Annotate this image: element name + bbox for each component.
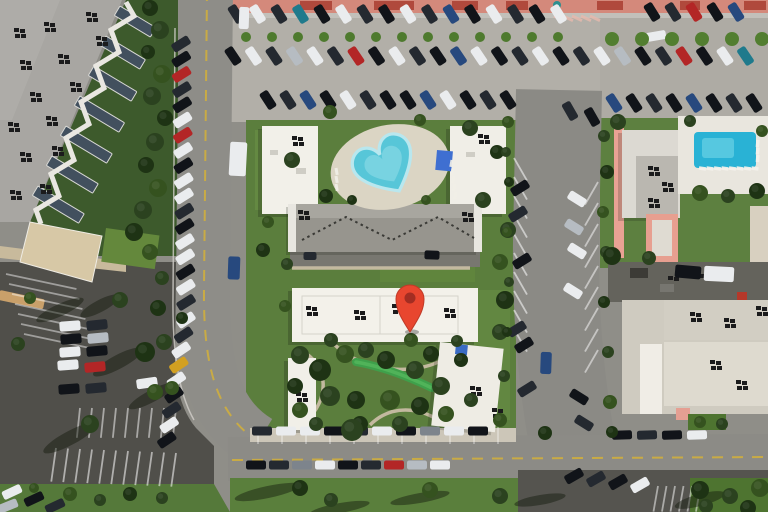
roof-unit [743, 386, 748, 390]
roof-unit [15, 128, 20, 132]
roof-unit [92, 13, 97, 17]
roof-unit [77, 88, 82, 92]
tree-highlight [423, 196, 428, 201]
car [85, 382, 107, 394]
car [58, 383, 80, 394]
car [60, 333, 82, 344]
tree-highlight [612, 116, 619, 123]
tree-highlight [289, 380, 296, 387]
roof-unit [711, 366, 716, 370]
car [674, 264, 701, 279]
roof-unit [27, 158, 32, 162]
tree-highlight [281, 302, 286, 307]
tree-highlight [65, 489, 71, 495]
roof-unit [26, 153, 31, 157]
roof-unit [736, 380, 741, 384]
parking-stripe [707, 168, 714, 169]
roof-unit [691, 318, 696, 322]
roof-unit [477, 392, 482, 396]
car [637, 430, 657, 440]
tree-highlight [125, 489, 131, 495]
tree-highlight [456, 355, 462, 361]
roof-unit [485, 140, 490, 144]
roof-unit [649, 204, 654, 208]
roof-unit [41, 190, 46, 194]
tree-highlight [466, 395, 472, 401]
tree-highlight [349, 196, 354, 201]
roof-unit [393, 310, 398, 314]
roof-unit [716, 361, 721, 365]
tree-highlight [158, 336, 165, 343]
roof-unit [36, 93, 41, 97]
tree-highlight [494, 490, 501, 497]
tree-highlight [754, 481, 762, 489]
roof-unit [655, 204, 660, 208]
tree-highlight [701, 501, 707, 507]
roof-unit [10, 190, 15, 194]
tree-highlight [140, 159, 147, 166]
roof-unit [64, 55, 69, 59]
roof-unit [479, 140, 484, 144]
tree-highlight [146, 89, 154, 97]
tree-highlight [96, 496, 101, 501]
roof-unit [662, 182, 667, 186]
parking-stripe [757, 140, 758, 147]
roof-unit [51, 28, 56, 32]
parking-stripe [757, 155, 758, 162]
roof-unit [31, 98, 36, 102]
tree-highlight [494, 256, 501, 263]
parking-stripe [454, 184, 455, 191]
car [304, 252, 317, 260]
tree [241, 32, 251, 42]
tree-highlight [156, 67, 164, 75]
pin-hole [405, 293, 416, 304]
car [229, 142, 248, 177]
pool-highlight [702, 138, 734, 158]
roof-unit [303, 398, 308, 402]
tree-highlight [724, 490, 731, 497]
tree-highlight [435, 379, 443, 387]
roof-mark [270, 150, 278, 155]
roof-unit [724, 318, 729, 322]
tree-highlight [424, 484, 431, 491]
tree-highlight [159, 112, 166, 119]
roof-unit [93, 18, 98, 22]
roof-unit [65, 60, 70, 64]
tree-highlight [137, 203, 145, 211]
car [239, 7, 250, 29]
car [338, 461, 358, 470]
tree-highlight [694, 483, 702, 491]
roof-unit [102, 37, 107, 41]
roof-unit [8, 122, 13, 126]
tree-highlight [600, 298, 605, 303]
roof-unit [71, 88, 76, 92]
roof-unit [756, 306, 761, 310]
parking-stripe [336, 184, 337, 191]
tree-highlight [742, 502, 749, 509]
car [228, 256, 241, 279]
tree [665, 32, 679, 46]
thin-building [750, 206, 768, 262]
roof-unit [663, 188, 668, 192]
tree-highlight [644, 253, 650, 259]
commercial-roof-2 [664, 342, 768, 406]
tree-highlight [494, 326, 501, 333]
car [540, 352, 552, 374]
car [662, 430, 682, 440]
aerial-map-view [0, 0, 768, 512]
parking-stripe [722, 168, 729, 169]
tree-highlight [152, 302, 159, 309]
parking-stripe [752, 168, 759, 169]
planter-box [744, 1, 766, 10]
roof-unit [649, 172, 654, 176]
roof-unit [696, 313, 701, 317]
roof-unit [59, 60, 64, 64]
tree-highlight [694, 187, 701, 194]
roof-unit [21, 158, 26, 162]
roof-unit [14, 123, 19, 127]
car [324, 427, 344, 436]
parking-stripe [453, 176, 454, 183]
tree-highlight [326, 335, 332, 341]
parking-stripe [729, 168, 736, 169]
roof-unit [730, 319, 735, 323]
tree-highlight [503, 148, 508, 153]
tree-highlight [178, 314, 183, 319]
roof-unit [697, 318, 702, 322]
planter-box [597, 1, 623, 10]
roof-unit [292, 136, 297, 140]
roof-unit [451, 314, 456, 318]
tree-highlight [599, 208, 604, 213]
roof-unit [53, 152, 58, 156]
tree [397, 32, 407, 42]
tree-highlight [312, 362, 322, 372]
tree-highlight [26, 294, 31, 299]
roof-unit [26, 61, 31, 65]
car [361, 461, 381, 470]
roof-unit [731, 324, 736, 328]
tree-highlight [380, 353, 388, 361]
red-container [737, 292, 747, 301]
roof-unit [478, 134, 483, 138]
tree-highlight [258, 245, 264, 251]
tree [423, 32, 433, 42]
roof-unit [87, 18, 92, 22]
tree-highlight [453, 337, 458, 342]
roof-unit [47, 190, 52, 194]
tree-highlight [143, 47, 149, 53]
tree-highlight [157, 273, 163, 279]
building-a [262, 126, 318, 214]
roof-unit [298, 137, 303, 141]
tree-highlight [504, 328, 509, 333]
tree-highlight [540, 428, 546, 434]
tree-highlight [167, 383, 173, 389]
tree-highlight [128, 225, 136, 233]
tree-highlight [114, 294, 121, 301]
parking-stripe [451, 160, 452, 167]
roof-unit [40, 184, 45, 188]
tree-highlight [325, 107, 331, 113]
car [468, 427, 488, 436]
white-roof-strip [640, 344, 662, 414]
tree [293, 32, 303, 42]
tree-highlight [604, 348, 609, 353]
tree-highlight [608, 428, 613, 433]
roof-unit [669, 188, 674, 192]
roof-unit [654, 167, 659, 171]
roof-unit [58, 54, 63, 58]
roof-unit [668, 183, 673, 187]
roof-mark [296, 168, 306, 174]
tree-highlight [606, 249, 614, 257]
tree-highlight [758, 127, 763, 132]
roof-unit [37, 98, 42, 102]
car [269, 461, 289, 470]
car [246, 461, 266, 470]
car [59, 346, 81, 357]
roof-unit [59, 152, 64, 156]
roof-unit [52, 117, 57, 121]
tree-highlight [264, 218, 269, 223]
roof-unit [668, 276, 673, 280]
tree-highlight [311, 419, 317, 425]
roof-unit [648, 198, 653, 202]
car [444, 427, 464, 436]
car [687, 430, 707, 440]
tree-highlight [144, 2, 151, 9]
tree-highlight [406, 335, 412, 341]
roof-mark [466, 152, 475, 157]
car [704, 266, 735, 283]
parking-stripe [452, 168, 453, 175]
car [384, 461, 404, 470]
tree [371, 32, 381, 42]
tree [695, 32, 709, 46]
car [57, 359, 79, 370]
tree-highlight [283, 260, 288, 265]
end-cap [474, 204, 482, 252]
roof-unit [476, 387, 481, 391]
tree-highlight [383, 393, 392, 402]
roof-unit [445, 314, 450, 318]
roof-unit [21, 34, 26, 38]
tree-highlight [31, 484, 36, 489]
tree-highlight [149, 135, 157, 143]
tree [527, 32, 537, 42]
tree-highlight [84, 417, 92, 425]
roof-unit [763, 312, 768, 316]
roof-unit [76, 83, 81, 87]
roof-unit [444, 308, 449, 312]
tree-highlight [464, 122, 471, 129]
tree-highlight [425, 348, 432, 355]
roof-unit [293, 142, 298, 146]
roof-unit [492, 408, 497, 412]
roof-unit [462, 212, 467, 216]
tree-highlight [600, 132, 605, 137]
roof-unit [46, 116, 51, 120]
tree [449, 32, 459, 42]
roof-unit [307, 312, 312, 316]
roof-unit [354, 310, 359, 314]
roof-unit [355, 316, 360, 320]
roof-unit [361, 316, 366, 320]
tree-highlight [440, 408, 447, 415]
roof-unit [44, 22, 49, 26]
tree-highlight [321, 191, 327, 197]
tree-highlight [154, 23, 162, 31]
tree-highlight [492, 147, 498, 153]
parking-stripe [336, 168, 337, 175]
tree-highlight [414, 399, 422, 407]
roof-unit [302, 393, 307, 397]
tree-highlight [360, 344, 367, 351]
tree-highlight [605, 397, 611, 403]
tree-highlight [294, 404, 301, 411]
tree-highlight [506, 178, 511, 183]
car [430, 461, 450, 470]
roof-unit [27, 66, 32, 70]
roof-unit [306, 306, 311, 310]
tree-highlight [326, 495, 332, 501]
tree-highlight [152, 181, 160, 189]
roof-unit [450, 309, 455, 313]
roof-unit [304, 211, 309, 215]
roof-unit [648, 166, 653, 170]
end-cap [288, 204, 296, 252]
tree [501, 32, 511, 42]
tree-highlight [500, 372, 505, 377]
roof-unit [70, 82, 75, 86]
roof-unit [58, 147, 63, 151]
tree-highlight [416, 116, 421, 121]
tree-highlight [344, 422, 354, 432]
tree [319, 32, 329, 42]
parking-stripe [714, 168, 721, 169]
tree-highlight [13, 339, 19, 345]
pink-wing-roof [652, 220, 672, 256]
roof-unit [690, 312, 695, 316]
roof-unit [21, 66, 26, 70]
roof-unit [50, 23, 55, 27]
tree-highlight [294, 348, 302, 356]
tree-highlight [158, 494, 163, 499]
car [86, 345, 108, 357]
tree-highlight [339, 347, 347, 355]
roof-unit [498, 409, 503, 413]
roof-unit [20, 60, 25, 64]
roof-unit [17, 196, 22, 200]
tree-highlight [286, 154, 293, 161]
tree-highlight [499, 293, 507, 301]
roof-unit [655, 172, 660, 176]
tree [475, 32, 485, 42]
tree-highlight [323, 389, 332, 398]
roof-unit [312, 307, 317, 311]
roof-unit [299, 142, 304, 146]
car [372, 427, 392, 436]
tree [345, 32, 355, 42]
roof-unit [20, 152, 25, 156]
pin-shadow [405, 330, 419, 335]
car [84, 361, 106, 373]
car [292, 461, 312, 470]
roof-unit [45, 28, 50, 32]
roof-unit [30, 92, 35, 96]
tree [267, 32, 277, 42]
tree-highlight [504, 118, 509, 123]
tree [635, 32, 649, 46]
tree-highlight [394, 418, 401, 425]
roof-unit [86, 12, 91, 16]
tree-highlight [495, 415, 501, 421]
tree-highlight [751, 185, 758, 192]
roof-unit [15, 34, 20, 38]
pink-accent [676, 408, 690, 420]
parking-stripe [336, 176, 337, 183]
roof-unit [469, 218, 474, 222]
roof-unit [299, 216, 304, 220]
roof-unit [484, 135, 489, 139]
alley-clutter [660, 284, 674, 292]
tree-highlight [144, 246, 151, 253]
parking-stripe [757, 148, 758, 155]
commercial-roof [664, 300, 768, 340]
roof-unit [305, 216, 310, 220]
tree-highlight [504, 228, 509, 233]
roof-unit [725, 324, 730, 328]
roof-unit [710, 360, 715, 364]
car [87, 332, 109, 344]
tree-highlight [409, 363, 417, 371]
roof-unit [53, 122, 58, 126]
roof-unit [97, 42, 102, 46]
alley-clutter [630, 268, 648, 278]
roof-unit [737, 386, 742, 390]
tree-highlight [294, 482, 301, 489]
tree-highlight [506, 278, 511, 283]
roof-unit [313, 312, 318, 316]
roof-unit [717, 366, 722, 370]
roof-unit [52, 146, 57, 150]
car [252, 427, 272, 436]
car [420, 427, 440, 436]
car [315, 461, 335, 470]
roof-unit [463, 218, 468, 222]
roof-unit [654, 199, 659, 203]
tree-highlight [477, 194, 484, 201]
roof-unit [11, 196, 16, 200]
car [424, 250, 439, 260]
tree-highlight [602, 167, 608, 173]
roof-unit [470, 386, 475, 390]
tree-highlight [149, 386, 156, 393]
tree-highlight [696, 418, 701, 423]
roof-unit [16, 191, 21, 195]
tree-highlight [718, 420, 723, 425]
roof-unit [9, 128, 14, 132]
roof-unit [762, 307, 767, 311]
roof-unit [103, 42, 108, 46]
roof-unit [96, 36, 101, 40]
blue-tarp [435, 150, 453, 171]
tree [553, 32, 563, 42]
